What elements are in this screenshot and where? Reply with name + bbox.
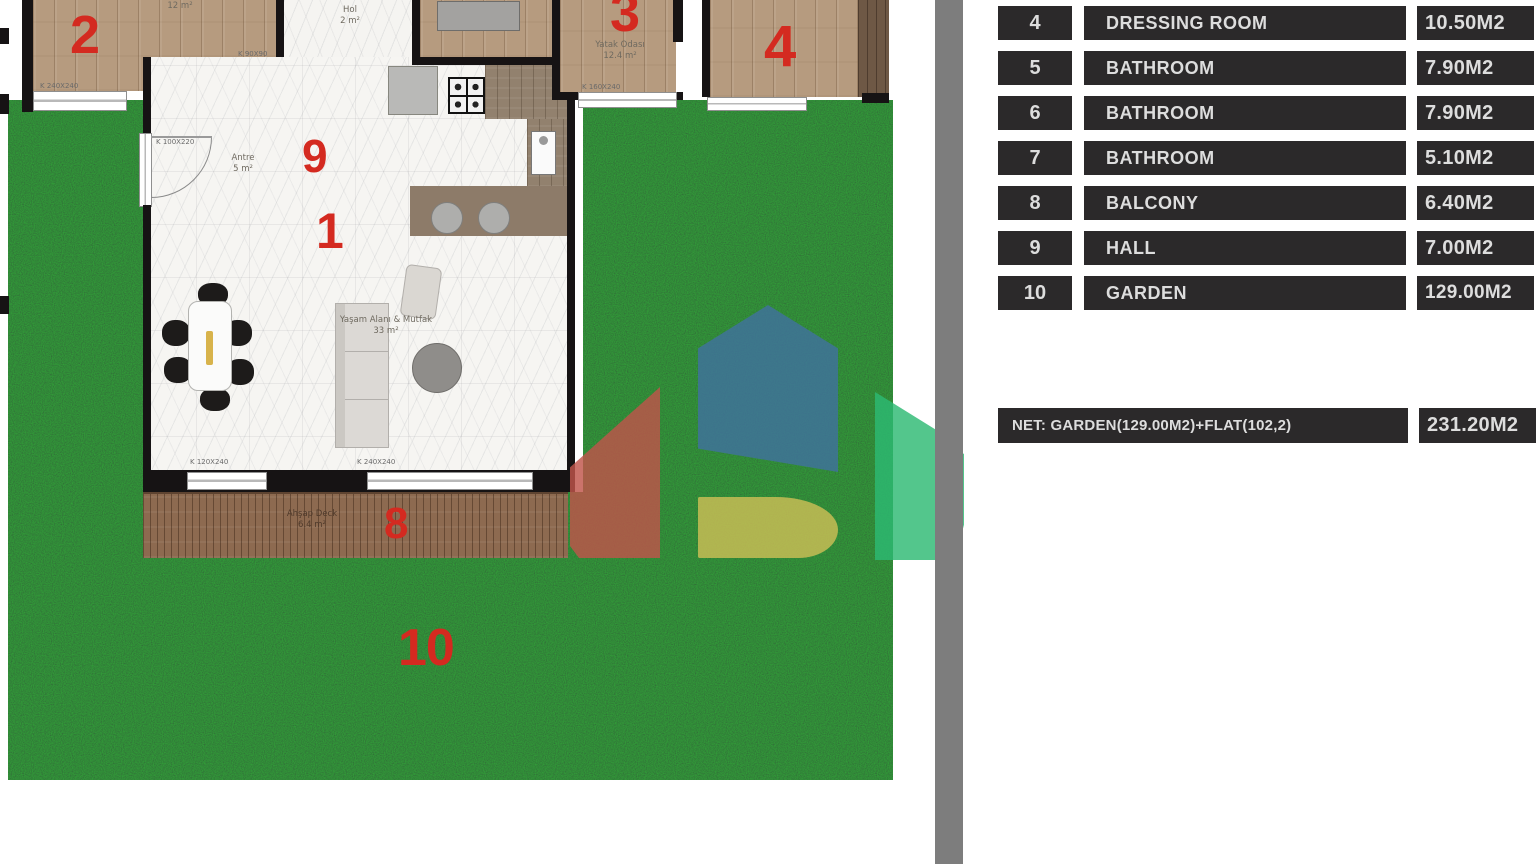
living-label: Yaşam Alanı & Mutfak 33 m² xyxy=(336,315,436,337)
deck-name: Ahşap Deck xyxy=(287,509,337,519)
hall-area: 2 m² xyxy=(340,16,360,26)
legend-row-name: BALCONY xyxy=(1084,186,1406,220)
room4-wall-bit xyxy=(862,93,889,103)
fridge xyxy=(388,66,438,115)
sofa-cushion-line xyxy=(345,399,389,400)
garden-number: 10 xyxy=(398,622,454,674)
legend-row-number: 9 xyxy=(998,231,1072,265)
stove xyxy=(448,77,485,114)
deck-label: Ahşap Deck 6.4 m² xyxy=(268,509,356,531)
legend-row-area: 129.00M2 xyxy=(1417,276,1534,310)
sink-faucet xyxy=(539,136,548,145)
room4-left-wall xyxy=(702,0,710,97)
stove-burner xyxy=(468,97,484,113)
legend-row-name: BATHROOM xyxy=(1084,51,1406,85)
living-left-wall-upper xyxy=(143,57,151,135)
legend-row-name: GARDEN xyxy=(1084,276,1406,310)
room2-window-label: K 240X240 xyxy=(40,82,78,90)
hall-right-wall xyxy=(412,0,420,57)
legend-row: 7 BATHROOM 5.10M2 xyxy=(998,141,1534,175)
spacer xyxy=(1406,276,1417,310)
legend-row-name: BATHROOM xyxy=(1084,141,1406,175)
armchair xyxy=(400,264,443,321)
stove-burner xyxy=(450,97,466,113)
wall-segment xyxy=(0,28,9,44)
spacer xyxy=(1406,96,1417,130)
coffee-table xyxy=(412,343,462,393)
living-window-small-label: K 120X240 xyxy=(190,458,228,466)
room3-left-wall xyxy=(552,0,560,100)
wall-segment xyxy=(0,94,9,114)
living-right-wall xyxy=(567,57,575,470)
spacer xyxy=(1406,51,1417,85)
table-centerpiece xyxy=(206,331,213,365)
room2-left-wall xyxy=(22,0,33,112)
room2-number: 2 xyxy=(70,8,99,62)
living-left-wall-lower xyxy=(143,205,151,470)
room4-wardrobe xyxy=(858,0,889,97)
net-value: 231.20M2 xyxy=(1419,408,1536,443)
legend-row-name: DRESSING ROOM xyxy=(1084,6,1406,40)
net-summary-row: NET: GARDEN(129.00M2)+FLAT(102,2) 231.20… xyxy=(998,408,1536,443)
legend-row-area: 5.10M2 xyxy=(1417,141,1534,175)
kitchen-sink xyxy=(531,131,556,175)
dining-chair xyxy=(200,388,230,411)
living-area: 33 m² xyxy=(373,326,398,336)
deck-number: 8 xyxy=(384,502,407,546)
legend-table: 4 DRESSING ROOM 10.50M2 5 BATHROOM 7.90M… xyxy=(998,6,1534,321)
room4-number: 4 xyxy=(764,18,795,76)
antre-label: Antre 5 m² xyxy=(220,153,266,175)
stove-burner xyxy=(450,79,466,95)
legend-row-name: BATHROOM xyxy=(1084,96,1406,130)
legend-row-area: 6.40M2 xyxy=(1417,186,1534,220)
bedroom-area: 12.4 m² xyxy=(603,51,636,61)
spacer xyxy=(1406,141,1417,175)
bar-stool xyxy=(431,202,463,234)
legend-row: 5 BATHROOM 7.90M2 xyxy=(998,51,1534,85)
spacer xyxy=(1072,276,1084,310)
spacer xyxy=(1406,6,1417,40)
spacer xyxy=(1072,231,1084,265)
living-number: 1 xyxy=(316,206,343,256)
stove-burner xyxy=(468,79,484,95)
hall-name: Hol xyxy=(343,5,357,15)
legend-row: 8 BALCONY 6.40M2 xyxy=(998,186,1534,220)
bedroom-name: Yatak Odası xyxy=(595,40,644,50)
divider-bar xyxy=(935,0,963,864)
dining-chair xyxy=(162,320,190,346)
entry-door-label: K 100X220 xyxy=(156,138,194,146)
spacer xyxy=(1072,141,1084,175)
net-label: NET: GARDEN(129.00M2)+FLAT(102,2) xyxy=(998,408,1408,443)
hall9-number: 9 xyxy=(302,133,327,179)
legend-row: 9 HALL 7.00M2 xyxy=(998,231,1534,265)
room3-wall-bit xyxy=(560,92,578,100)
living-window-large-label: K 240X240 xyxy=(357,458,395,466)
wall-segment xyxy=(0,296,9,314)
spacer xyxy=(1072,6,1084,40)
legend-row-area: 7.90M2 xyxy=(1417,96,1534,130)
plan-right-gap xyxy=(575,57,583,492)
legend-row-number: 7 xyxy=(998,141,1072,175)
legend-row: 10 GARDEN 129.00M2 xyxy=(998,276,1534,310)
logo-yellow-shape xyxy=(698,497,838,558)
bedroom-window-label: K 160X240 xyxy=(582,83,620,91)
room4-window-sill xyxy=(707,97,807,111)
spacer xyxy=(1072,96,1084,130)
sofa-cushion-line xyxy=(345,351,389,352)
living-name: Yaşam Alanı & Mutfak xyxy=(340,315,432,325)
hall-label: Hol 2 m² xyxy=(318,5,382,27)
antre-name: Antre xyxy=(231,153,254,163)
legend-row-number: 6 xyxy=(998,96,1072,130)
spacer xyxy=(1406,186,1417,220)
room3-number: 3 xyxy=(610,0,639,40)
legend-row-number: 5 xyxy=(998,51,1072,85)
bedroom-label: Yatak Odası 12.4 m² xyxy=(585,40,655,62)
spacer xyxy=(1408,408,1419,443)
bar-stool xyxy=(478,202,510,234)
room3-right-wall xyxy=(673,0,683,42)
room2-window-sill xyxy=(33,91,127,111)
room2-area-label: 12 m² xyxy=(150,1,210,12)
closet xyxy=(437,1,520,31)
legend-row-area: 7.00M2 xyxy=(1417,231,1534,265)
legend-row: 4 DRESSING ROOM 10.50M2 xyxy=(998,6,1534,40)
deck-area: 6.4 m² xyxy=(298,520,326,530)
antre-area: 5 m² xyxy=(233,164,253,174)
spacer xyxy=(1072,186,1084,220)
legend-row-area: 10.50M2 xyxy=(1417,6,1534,40)
floor-plan-page: 2 12 m² K 240X240 K 90X90 Hol 2 m² K 100… xyxy=(0,0,1536,864)
living-window-small-sill xyxy=(187,472,267,490)
spacer xyxy=(1406,231,1417,265)
spacer xyxy=(1072,51,1084,85)
kitchen-top-wall xyxy=(412,57,575,65)
hall-left-wall xyxy=(276,0,284,65)
living-window-large-sill xyxy=(367,472,533,490)
legend-row: 6 BATHROOM 7.90M2 xyxy=(998,96,1534,130)
room3-window-sill xyxy=(578,92,677,108)
legend-row-number: 8 xyxy=(998,186,1072,220)
legend-row-number: 10 xyxy=(998,276,1072,310)
legend-row-number: 4 xyxy=(998,6,1072,40)
legend-row-area: 7.90M2 xyxy=(1417,51,1534,85)
legend-row-name: HALL xyxy=(1084,231,1406,265)
